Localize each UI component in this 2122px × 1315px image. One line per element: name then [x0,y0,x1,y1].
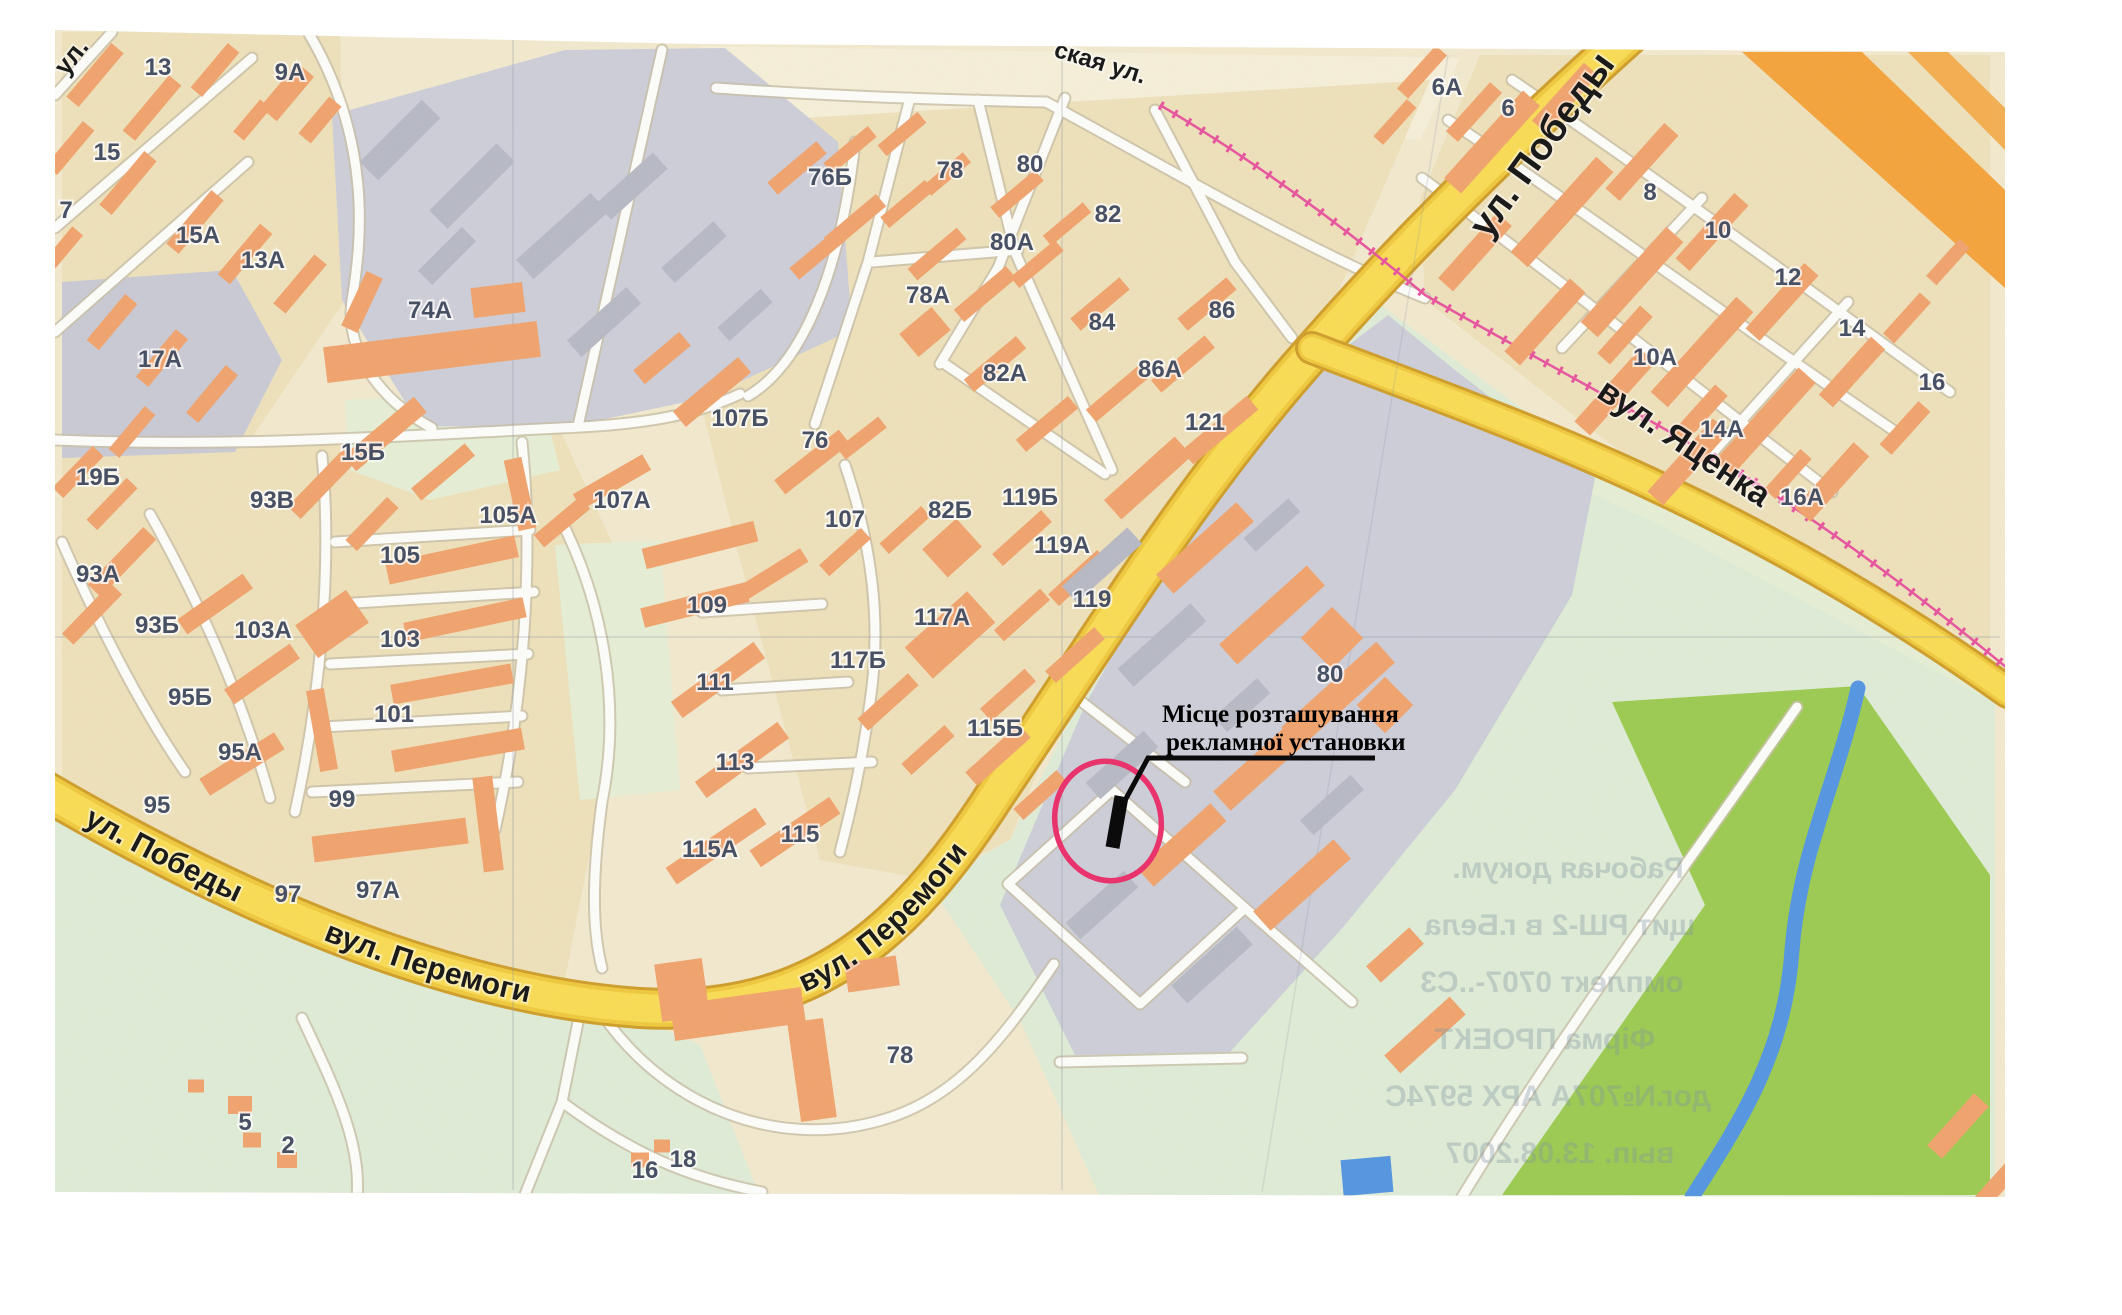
annotation-line2: рекламної установки [1166,729,1406,756]
city-map: Рабочая докум.щит РШ-2 в г.Белаомплект 0… [0,0,2122,1315]
scan-grain [40,20,2040,1220]
annotation-line1: Місце розташування [1162,701,1399,728]
scanned-map-page: Рабочая докум.щит РШ-2 в г.Белаомплект 0… [0,0,2122,1315]
